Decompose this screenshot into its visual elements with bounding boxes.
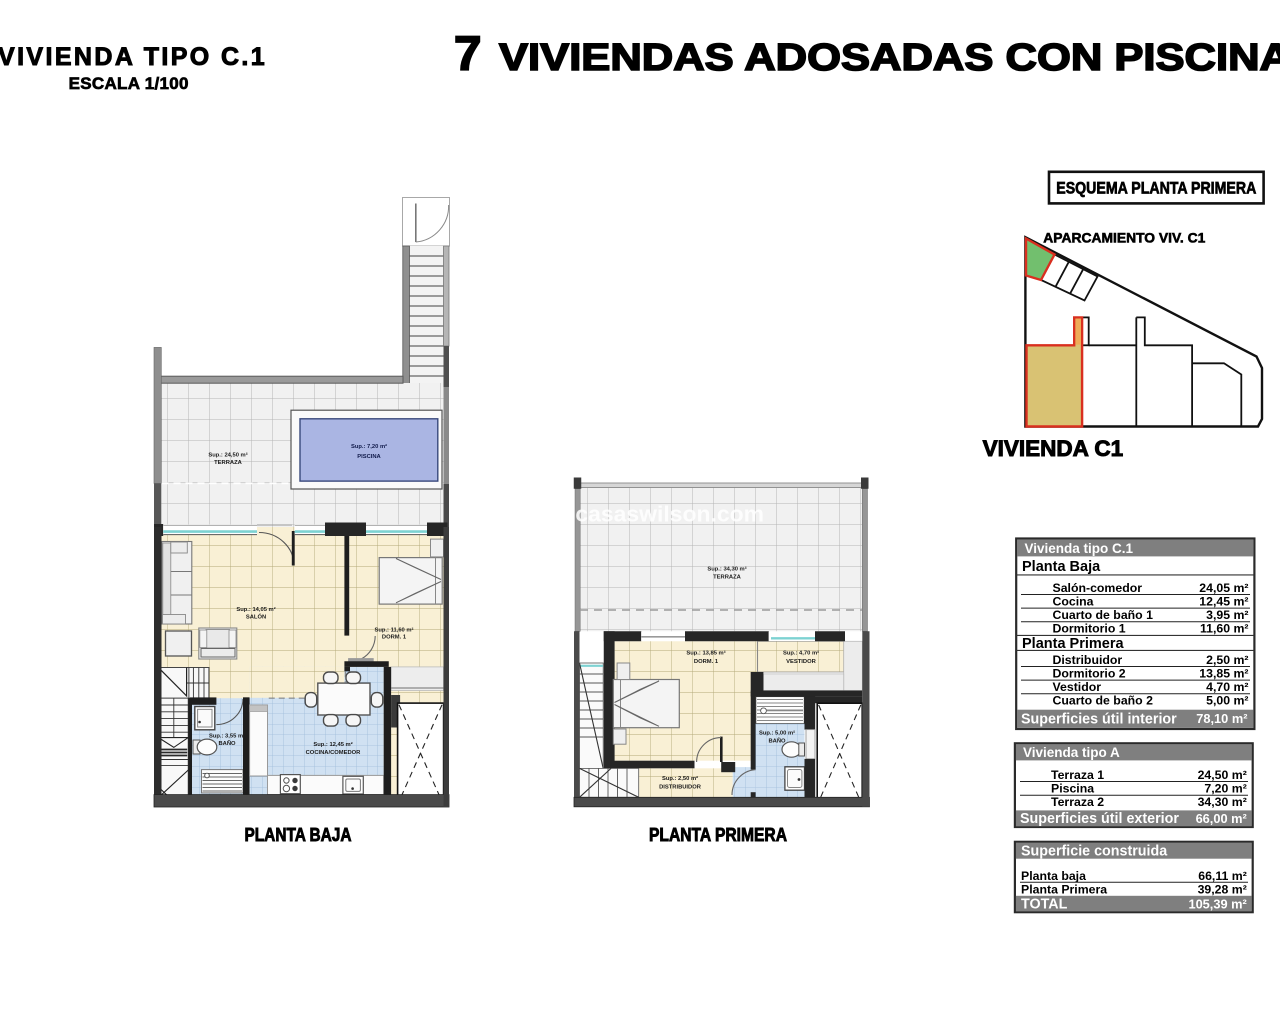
svg-text:Terraza 1: Terraza 1 xyxy=(1051,768,1104,782)
svg-text:Dormitorio 2: Dormitorio 2 xyxy=(1053,667,1126,681)
svg-text:12,45 m²: 12,45 m² xyxy=(1199,595,1248,609)
svg-text:Superficies útil exterior: Superficies útil exterior xyxy=(1020,811,1179,827)
svg-text:Sup.: 2,50 m²: Sup.: 2,50 m² xyxy=(662,775,698,782)
svg-text:TERRAZA: TERRAZA xyxy=(713,575,742,581)
svg-text:Sup.: 7,20 m²: Sup.: 7,20 m² xyxy=(351,443,387,450)
svg-text:BAÑO: BAÑO xyxy=(768,738,786,745)
svg-text:TERRAZA: TERRAZA xyxy=(214,460,243,466)
svg-text:APARCAMIENTO VIV. C1: APARCAMIENTO VIV. C1 xyxy=(1043,230,1205,246)
svg-text:5,00 m²: 5,00 m² xyxy=(1206,694,1248,708)
svg-text:Sup.: 4,70 m²: Sup.: 4,70 m² xyxy=(783,650,819,657)
svg-text:34,30 m²: 34,30 m² xyxy=(1198,795,1247,809)
svg-text:Salón-comedor: Salón-comedor xyxy=(1053,581,1143,595)
svg-text:w.casaswilson.com: w.casaswilson.com xyxy=(551,502,764,527)
svg-text:Piscina: Piscina xyxy=(1051,782,1094,796)
svg-text:SALÓN: SALÓN xyxy=(246,613,266,621)
svg-text:Vestidor: Vestidor xyxy=(1053,680,1102,694)
svg-text:Cuarto de baño 1: Cuarto de baño 1 xyxy=(1053,608,1154,622)
svg-text:78,10 m²: 78,10 m² xyxy=(1196,711,1247,726)
svg-text:Sup.: 13,85 m²: Sup.: 13,85 m² xyxy=(686,650,725,657)
svg-text:ESCALA 1/100: ESCALA 1/100 xyxy=(69,74,189,93)
svg-text:Planta Primera: Planta Primera xyxy=(1021,883,1107,897)
svg-text:ESQUEMA PLANTA PRIMERA: ESQUEMA PLANTA PRIMERA xyxy=(1056,180,1256,198)
svg-text:COCINA/COMEDOR: COCINA/COMEDOR xyxy=(306,750,362,756)
svg-text:VIVIENDA C1: VIVIENDA C1 xyxy=(983,436,1124,461)
svg-text:Superficie construida: Superficie construida xyxy=(1021,844,1168,860)
svg-text:Vivienda tipo C.1: Vivienda tipo C.1 xyxy=(1025,541,1134,556)
svg-text:4,70 m²: 4,70 m² xyxy=(1206,680,1248,694)
svg-text:7: 7 xyxy=(454,27,482,81)
svg-text:Planta Baja: Planta Baja xyxy=(1022,559,1101,575)
svg-text:PLANTA PRIMERA: PLANTA PRIMERA xyxy=(649,824,787,845)
svg-text:DORM. 1: DORM. 1 xyxy=(694,659,719,665)
svg-text:Sup.: 5,00 m²: Sup.: 5,00 m² xyxy=(759,730,795,737)
svg-text:Sup.: 3,55 m²: Sup.: 3,55 m² xyxy=(209,733,245,740)
svg-text:Planta Primera: Planta Primera xyxy=(1022,636,1124,652)
svg-text:66,00 m²: 66,00 m² xyxy=(1196,811,1247,826)
svg-text:7,20 m²: 7,20 m² xyxy=(1204,782,1246,796)
svg-text:3,95 m²: 3,95 m² xyxy=(1206,608,1248,622)
svg-text:Sup.: 14,05 m²: Sup.: 14,05 m² xyxy=(236,606,275,613)
svg-text:11,60 m²: 11,60 m² xyxy=(1200,621,1249,635)
svg-text:Terraza 2: Terraza 2 xyxy=(1051,795,1104,809)
svg-text:VIVIENDA TIPO C.1: VIVIENDA TIPO C.1 xyxy=(0,43,267,71)
svg-text:Cuarto de baño 2: Cuarto de baño 2 xyxy=(1053,694,1154,708)
svg-text:Superficies útil interior: Superficies útil interior xyxy=(1021,711,1177,727)
svg-text:24,50 m²: 24,50 m² xyxy=(1198,768,1247,782)
svg-text:VIVIENDAS ADOSADAS CON PISCINA: VIVIENDAS ADOSADAS CON PISCINA xyxy=(499,37,1280,79)
svg-text:66,11 m²: 66,11 m² xyxy=(1198,869,1247,883)
svg-text:PLANTA BAJA: PLANTA BAJA xyxy=(245,824,352,845)
svg-text:Sup.: 24,50 m²: Sup.: 24,50 m² xyxy=(208,452,247,459)
svg-text:24,05 m²: 24,05 m² xyxy=(1199,581,1248,595)
svg-text:Sup.: 12,45 m²: Sup.: 12,45 m² xyxy=(313,741,352,748)
svg-text:Vivienda tipo A: Vivienda tipo A xyxy=(1023,745,1120,760)
svg-text:VESTIDOR: VESTIDOR xyxy=(786,659,816,665)
svg-text:2,50 m²: 2,50 m² xyxy=(1206,653,1248,667)
svg-text:DORM. 1: DORM. 1 xyxy=(382,635,407,641)
svg-text:13,85 m²: 13,85 m² xyxy=(1199,667,1248,681)
svg-text:Dormitorio 1: Dormitorio 1 xyxy=(1053,621,1126,635)
svg-text:DISTRIBUIDOR: DISTRIBUIDOR xyxy=(659,785,702,791)
svg-text:BAÑO: BAÑO xyxy=(218,740,236,747)
svg-text:Cocina: Cocina xyxy=(1053,595,1094,609)
svg-text:Planta baja: Planta baja xyxy=(1021,869,1086,883)
svg-text:Distribuidor: Distribuidor xyxy=(1053,653,1123,667)
svg-text:39,28 m²: 39,28 m² xyxy=(1198,883,1247,897)
svg-text:105,39 m²: 105,39 m² xyxy=(1188,897,1246,912)
svg-text:TOTAL: TOTAL xyxy=(1021,897,1068,913)
svg-text:Sup.: 34,30 m²: Sup.: 34,30 m² xyxy=(707,566,746,573)
svg-text:Sup.: 11,60 m²: Sup.: 11,60 m² xyxy=(375,627,414,634)
svg-text:PISCINA: PISCINA xyxy=(357,454,381,460)
